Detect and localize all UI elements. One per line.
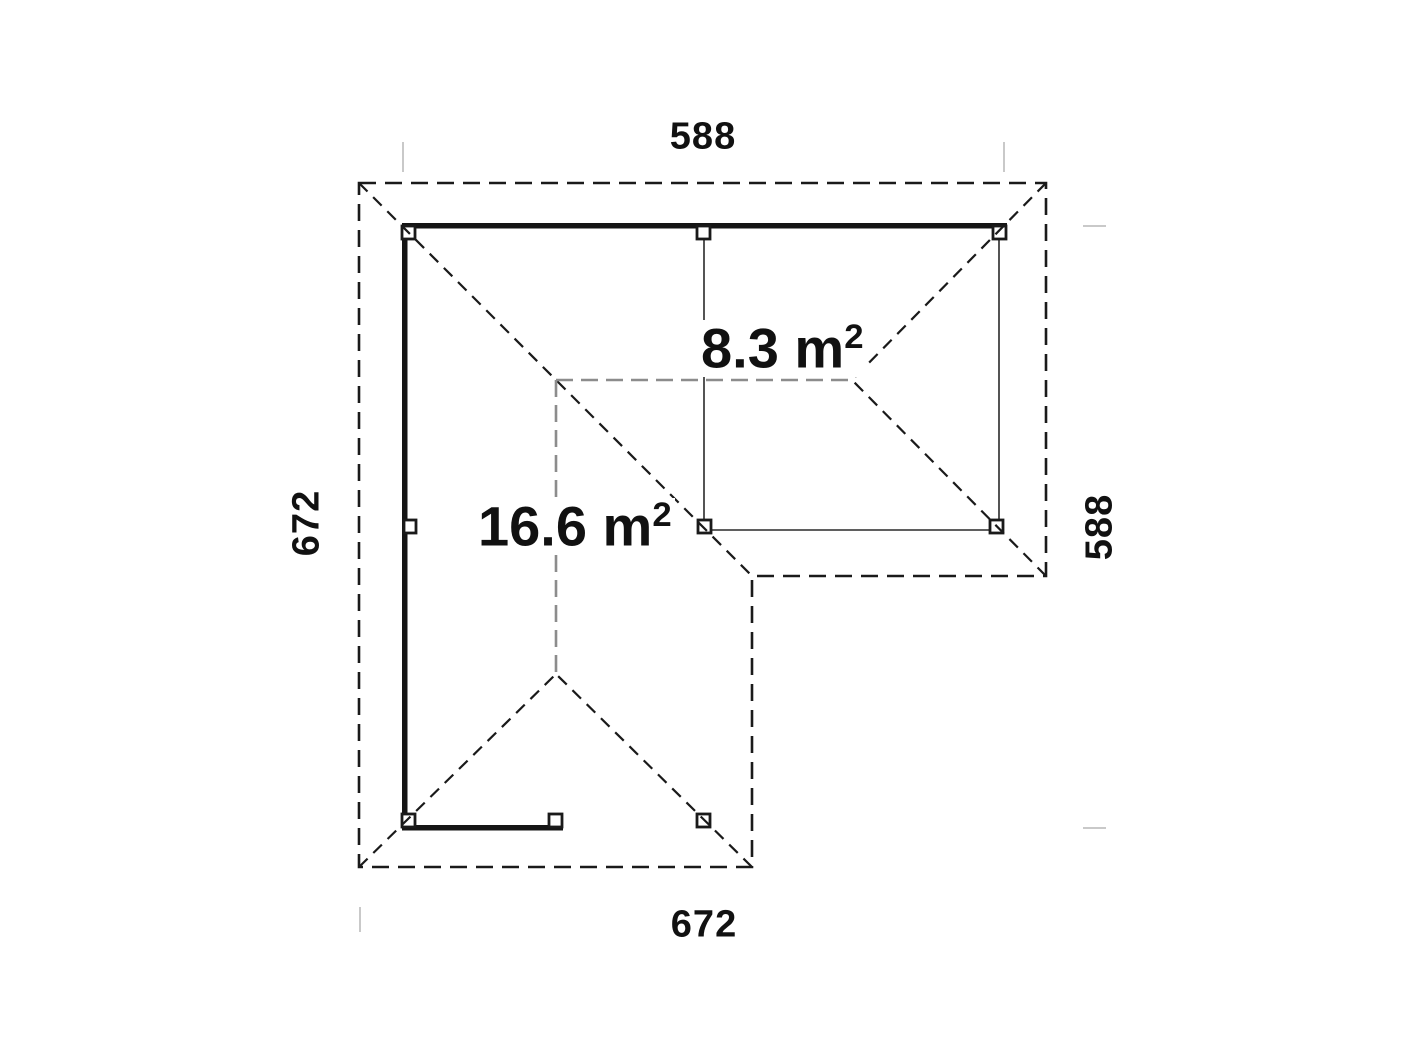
post-inner-corner	[698, 520, 711, 533]
roof-hip-bottom-left	[359, 674, 556, 867]
roof-hip-lines	[359, 183, 1046, 867]
dimension-ticks	[360, 142, 1106, 932]
post-top-middle	[697, 226, 710, 239]
dimension-label-left: 672	[286, 490, 329, 556]
post-bottom-left	[402, 814, 415, 827]
area-exponent-right-room: 2	[844, 318, 863, 356]
floorplan-drawing: 588 672 588 672 8.3 m2 16.6 m2	[0, 0, 1407, 1055]
roof-hip-bottom-right-wing	[852, 380, 1046, 576]
post-left-middle	[404, 520, 416, 533]
area-value-right-room: 8.3 m	[701, 317, 844, 380]
roof-hip-top-right	[852, 183, 1046, 380]
wall-bottom	[402, 825, 563, 831]
dimension-label-bottom: 672	[671, 904, 737, 947]
dimension-label-right: 588	[1079, 494, 1122, 560]
post-top-right	[993, 226, 1006, 239]
roof-hip-bottom-middle	[556, 674, 752, 867]
post-bottom-middle	[549, 814, 562, 827]
dimension-label-top: 588	[670, 116, 736, 159]
beam-lines	[704, 239, 999, 530]
area-label-main-room: 16.6 m2	[475, 498, 675, 555]
area-value-main-room: 16.6 m	[478, 495, 652, 558]
area-label-right-room: 8.3 m2	[698, 320, 867, 377]
area-exponent-main-room: 2	[652, 496, 671, 534]
